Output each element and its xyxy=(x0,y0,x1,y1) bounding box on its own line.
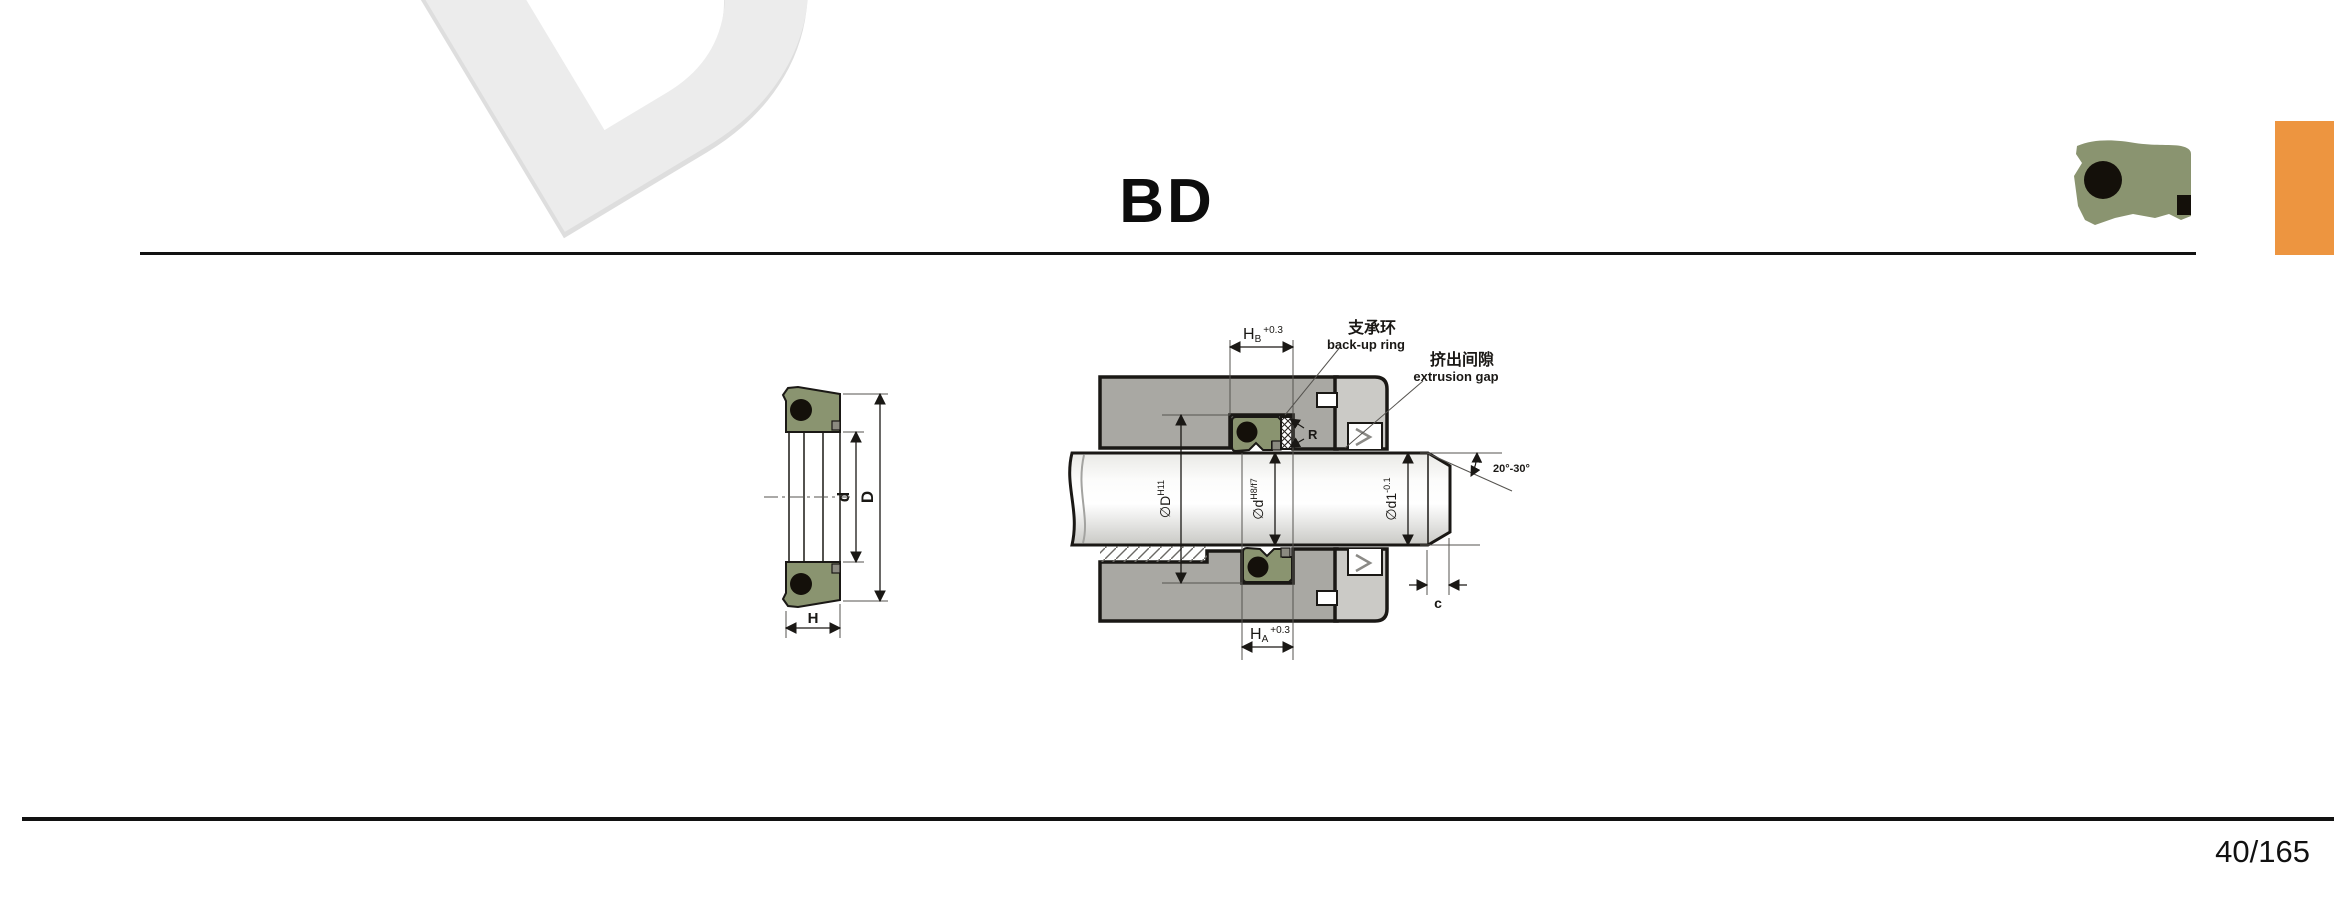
housing-top xyxy=(1100,377,1337,449)
backup-ring-label-en: back-up ring xyxy=(1327,337,1405,352)
backup-ring-label-cn: 支承环 xyxy=(1347,318,1396,337)
dim-ha-main: H xyxy=(1250,626,1262,643)
dim-ha: HA+0.3 xyxy=(1242,625,1293,647)
dim-D-label: D xyxy=(858,491,877,503)
dim-d1-main: ∅d1 xyxy=(1383,493,1399,521)
dim-D-tol: H11 xyxy=(1156,480,1166,496)
dim-c-label: c xyxy=(1434,595,1442,611)
installation-section-view: HB+0.3 HA+0.3 ∅DH11 ∅dH8/f7 xyxy=(1050,295,1580,705)
extrusion-gap-label-cn: 挤出间隙 xyxy=(1430,350,1494,369)
gland-slot-top xyxy=(1348,423,1382,449)
backup-ring-hatched xyxy=(1281,417,1293,449)
dim-ha-sub: A xyxy=(1262,634,1269,645)
dim-D-main: ∅D xyxy=(1157,496,1173,518)
seal-section-bottom xyxy=(783,562,840,607)
seal-icon-oring xyxy=(2084,161,2122,199)
dim-hb-tol: +0.3 xyxy=(1263,325,1283,336)
seal-section-top xyxy=(783,387,840,432)
dim-d1-tol: -0.1 xyxy=(1382,477,1392,493)
seal-icon-backup-square xyxy=(2177,195,2191,215)
seal-backup-square-bottom xyxy=(1281,548,1290,557)
dim-d-main: ∅d xyxy=(1250,500,1266,520)
extrusion-gap-label-en: extrusion gap xyxy=(1413,369,1498,384)
dim-H-label: H xyxy=(808,610,819,627)
page-number: 40/165 xyxy=(2215,834,2310,870)
backup-square-top xyxy=(832,421,840,430)
dim-d-label: d xyxy=(834,492,853,502)
backup-square-bottom xyxy=(832,564,840,573)
clearance-hatch-band xyxy=(1100,546,1207,562)
seal-backup-square-top xyxy=(1272,441,1281,450)
dim-hb-main: H xyxy=(1243,326,1255,343)
oring-top xyxy=(1237,422,1258,443)
housing-gland-notch-bottom xyxy=(1317,591,1337,605)
dim-c: c xyxy=(1409,585,1467,611)
dim-hb-sub: B xyxy=(1255,334,1262,345)
oring-top xyxy=(790,399,812,421)
chamfer-angle-label: 20°-30° xyxy=(1493,463,1530,475)
title-rule xyxy=(140,252,2196,255)
dim-d-tol: H8/f7 xyxy=(1249,478,1259,500)
dim-ha-tol: +0.3 xyxy=(1270,625,1290,636)
radius-label: R xyxy=(1308,427,1318,442)
oring-bottom xyxy=(790,573,812,595)
edge-tab xyxy=(2275,121,2334,255)
oring-bottom xyxy=(1248,557,1269,578)
seal-profile-icon xyxy=(2073,136,2195,228)
dim-hb: HB+0.3 xyxy=(1230,325,1293,347)
dim-H: H xyxy=(786,604,840,638)
seal-bottom xyxy=(1243,548,1292,582)
housing-gland-notch-top xyxy=(1317,393,1337,407)
svg-text:HB+0.3: HB+0.3 xyxy=(1243,325,1283,345)
seal-top xyxy=(1232,417,1293,451)
seal-side-view: d D H xyxy=(752,375,927,675)
gland-slot-bottom xyxy=(1348,549,1382,575)
svg-text:HA+0.3: HA+0.3 xyxy=(1250,625,1290,645)
page-title: BD xyxy=(1119,166,1215,237)
footer-rule xyxy=(22,817,2334,821)
catalog-page: DS BD xyxy=(0,0,2334,912)
